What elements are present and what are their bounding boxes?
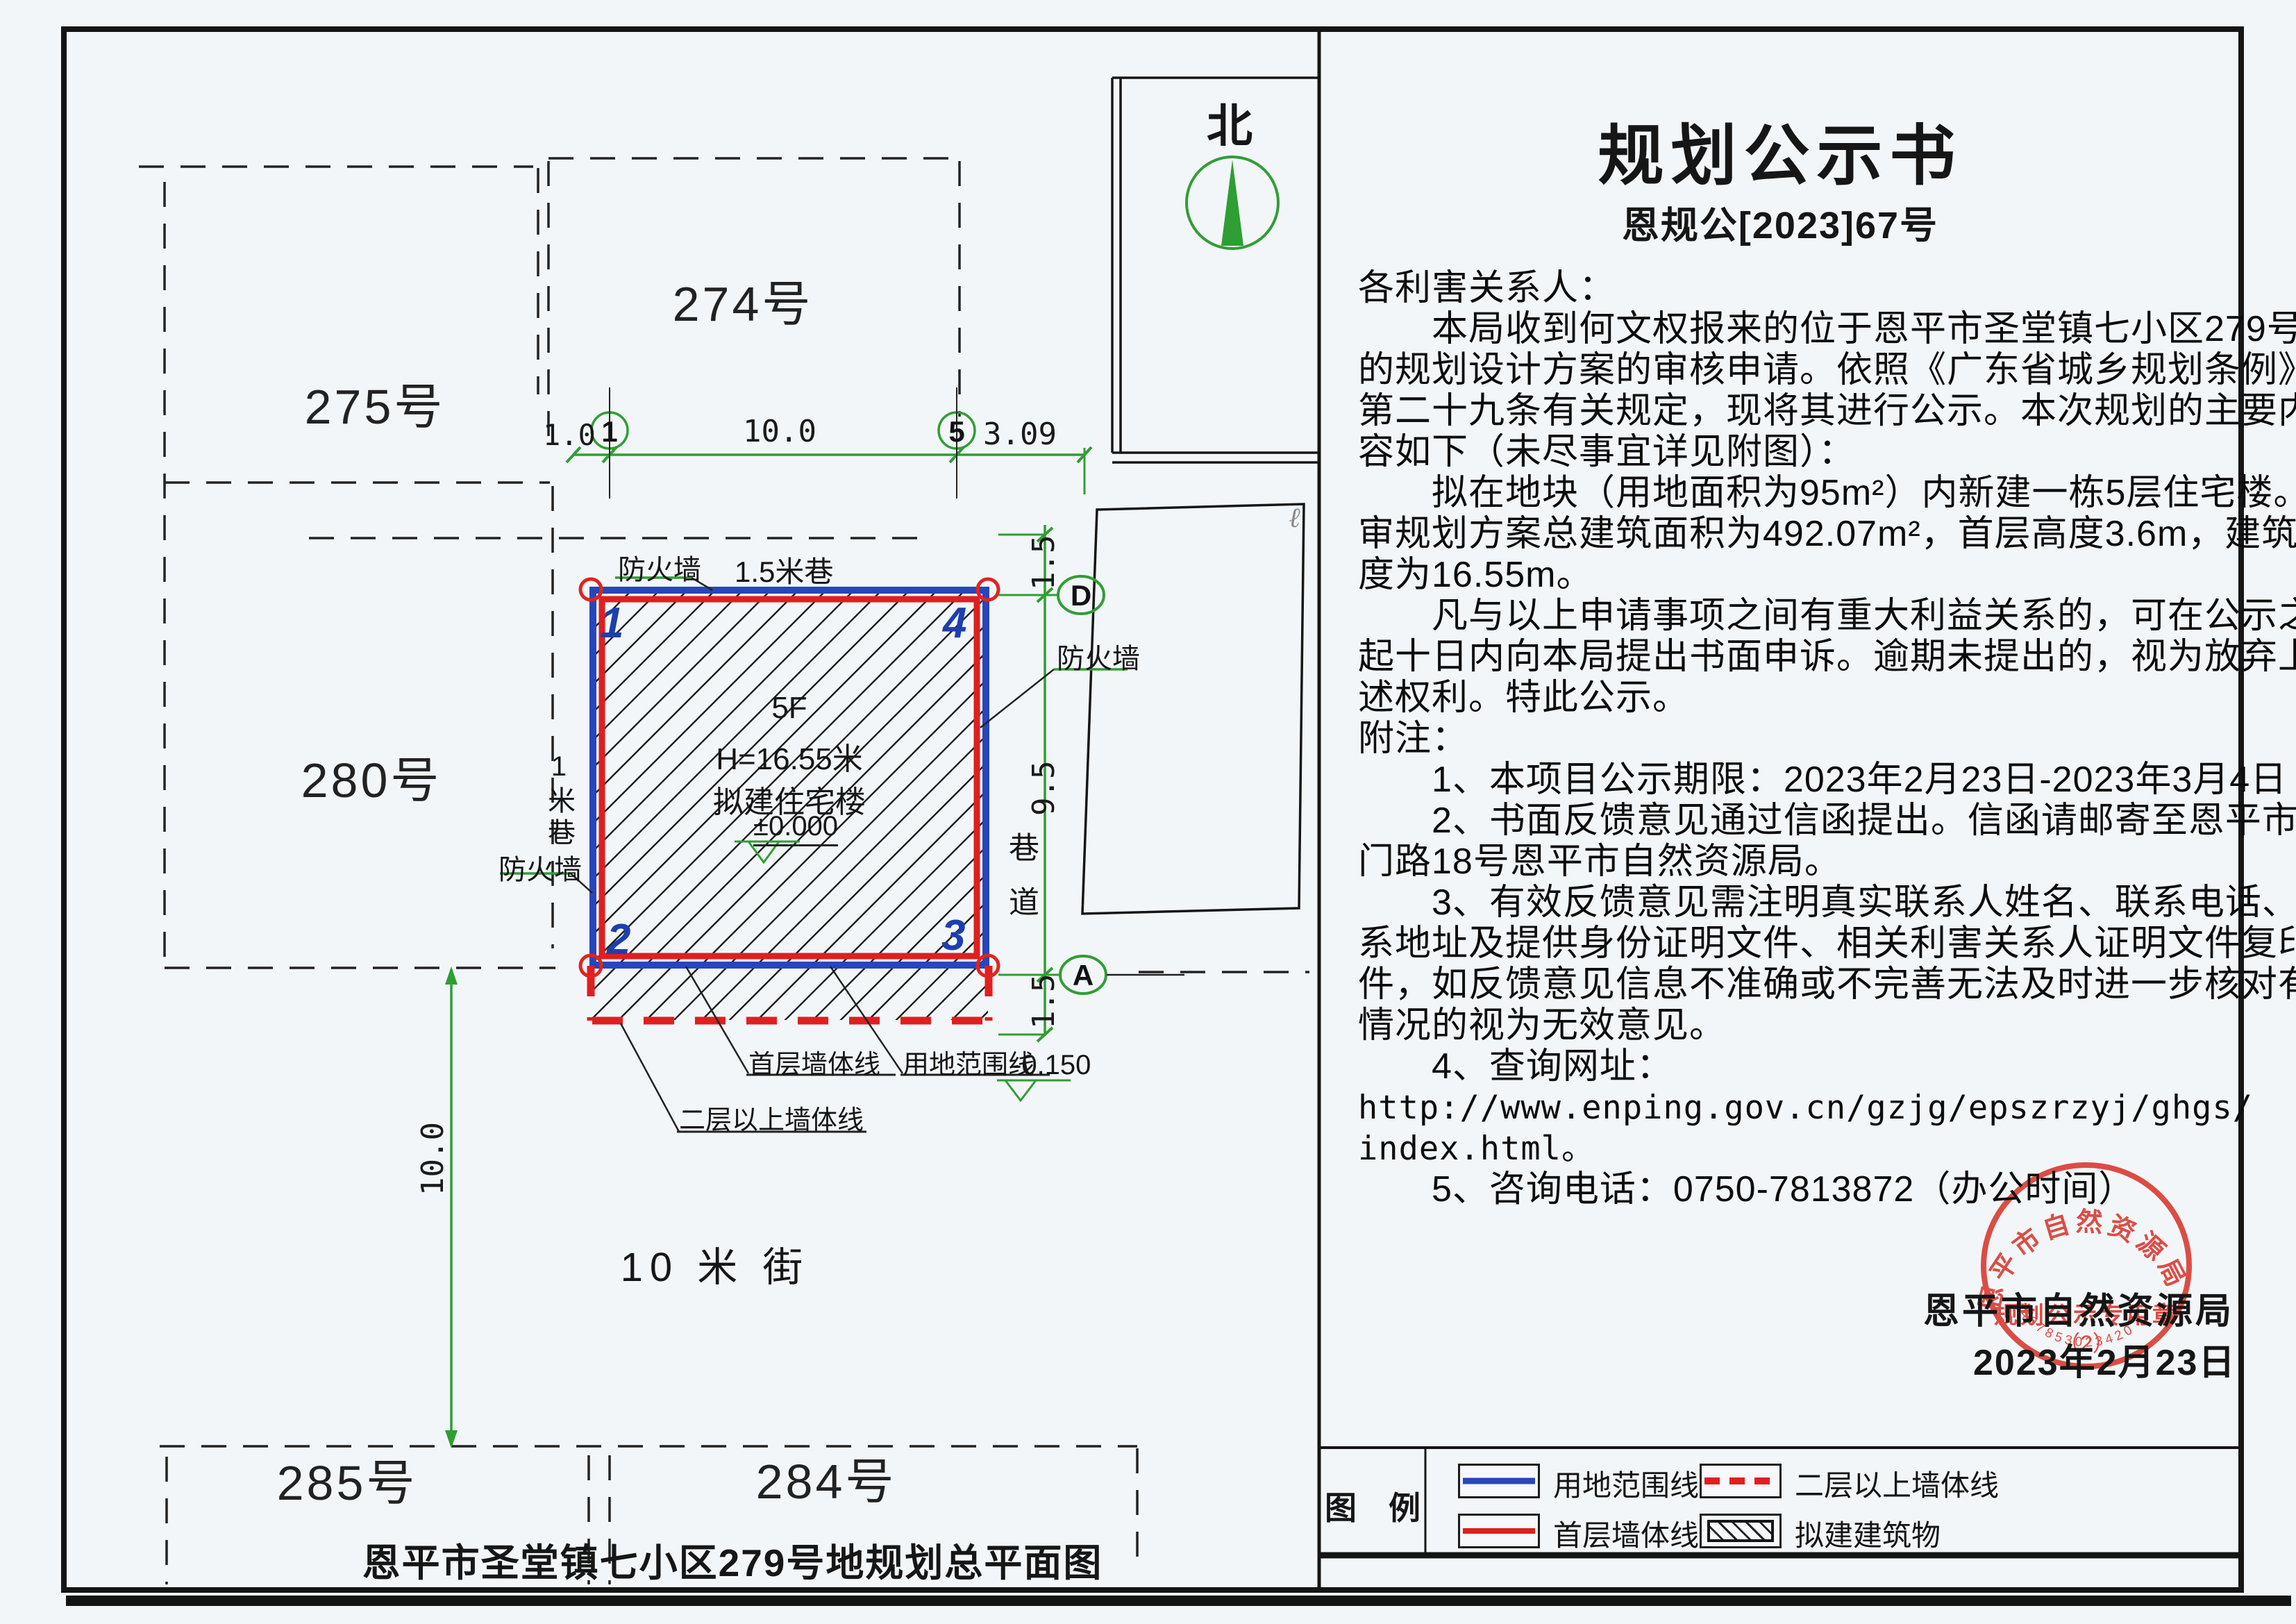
legend-swatch-building [1700,1514,1782,1548]
firewall-label-right: 防火墙 [1057,636,1140,676]
building-corner-3: 3 [941,911,965,960]
building-height: H=16.55米 [685,734,894,778]
red-line-icon [1463,1528,1535,1534]
doc-number: 恩规公[2023]67号 [1319,194,2241,249]
dim-10-0: 10.0 [743,414,816,449]
body-line: 述权利。特此公示。 [1358,678,2254,719]
body-line: 件，如反馈意见信息不准确或不完善无法及时进一步核对有关 [1358,964,2254,1005]
announcement-body: 各利害关系人： 本局收到何文权报来的位于恩平市圣堂镇七小区279号地 的规划设计… [1358,268,2254,1210]
axis-5: 5 [939,415,974,449]
body-line: 4、查询网址： [1358,1046,2254,1087]
dim-v-1-5-bottom: 1.5 [1026,974,1062,1029]
legend-swatch-first-wall [1458,1514,1540,1548]
building-corner-1: 1 [600,598,623,648]
signature-date: 2023年2月23日 [1973,1333,2236,1385]
legend-label-building: 拟建建筑物 [1795,1512,1941,1555]
axis-D: D [1064,579,1098,612]
axis-1: 1 [592,415,627,449]
neighbor-structures [1082,78,1318,914]
upper-wall-hatch [592,967,988,1020]
plot-284: 284号 [729,1443,923,1513]
body-line: 2、书面反馈意见通过信函提出。信函请邮寄至恩平市西 [1358,801,2254,842]
building-corner-4: 4 [943,598,966,648]
body-line-url: index.html。 [1358,1128,2254,1169]
body-line: 第二十九条有关规定，现将其进行公示。本次规划的主要内 [1358,391,2254,432]
dim-3-09: 3.09 [983,417,1057,452]
legend-label-upper-wall: 二层以上墙体线 [1795,1462,1999,1505]
site-line-label: 用地范围线 [903,1043,1034,1081]
dim-1-0: 1.0 [543,418,596,452]
north-label: 北 [1207,89,1252,156]
body-line: 各利害关系人： [1358,268,2254,309]
body-line: 拟在地块（用地面积为95m²）内新建一栋5层住宅楼。送 [1358,473,2254,514]
alley-label: 巷道 [998,832,1043,940]
street-label: 10 米 街 [590,1234,840,1293]
body-line-url: http://www.enping.gov.cn/gzjg/epszrzyj/g… [1358,1087,2254,1128]
legend-label-site-line: 用地范围线 [1553,1462,1699,1505]
body-line: 门路18号恩平市自然资源局。 [1358,842,2254,882]
body-line: 系地址及提供身份证明文件、相关利害关系人证明文件复印 [1358,923,2254,964]
upper-wall-label: 二层以上墙体线 [679,1098,864,1137]
body-line: 1、本项目公示期限：2023年2月23日-2023年3月4日 [1358,760,2254,801]
legend-header: 图 例 [1321,1483,1424,1529]
body-line: 度为16.55m。 [1358,555,2254,596]
body-line: 凡与以上申请事项之间有重大利益关系的，可在公示之日 [1358,596,2254,637]
body-line: 情况的视为无效意见。 [1358,1005,2254,1046]
axis-A: A [1066,959,1100,992]
lane-1-5m-label: 1.5米巷 [735,549,833,591]
building-floors: 5F [737,691,841,726]
doc-title: 规划公示书 [1319,103,2241,198]
plot-275: 275号 [278,368,472,438]
hatch-box-icon [1707,1520,1774,1542]
firewall-label-top: 防火墙 [618,547,701,587]
body-line: 附注： [1358,719,2254,760]
body-line: 的规划设计方案的审核申请。依照《广东省城乡规划条例》 [1358,350,2254,391]
plot-274: 274号 [646,265,840,335]
body-line: 审规划方案总建筑面积为492.07m²，首层高度3.6m，建筑总高 [1358,514,2254,555]
red-dashed-line-icon [1704,1477,1777,1484]
blue-line-icon [1463,1478,1535,1484]
page-edge-shadow [66,1596,2291,1606]
firewall-label-left: 防火墙 [498,847,582,887]
plot-280: 280号 [274,742,469,812]
plot-285: 285号 [250,1444,444,1514]
signature-agency: 恩平市自然资源局 [1923,1282,2234,1334]
plan-title: 恩平市圣堂镇七小区279号地规划总平面图 [292,1532,1173,1587]
legend-swatch-site-line [1458,1464,1540,1498]
dim-v-1-5-top: 1.5 [1026,535,1062,590]
body-line: 本局收到何文权报来的位于恩平市圣堂镇七小区279号地 [1358,309,2254,350]
level-zero: ±0.000 [753,811,838,846]
scan-artifact-mark: ℓ [1289,501,1300,534]
body-line: 容如下（未尽事宜详见附图）： [1358,432,2254,473]
dim-v-9-5: 9.5 [1026,761,1062,816]
dim-street-10-0: 10.0 [415,1122,451,1196]
legend-swatch-upper-wall [1700,1464,1782,1498]
legend-label-first-wall: 首层墙体线 [1553,1512,1699,1555]
building-corner-2: 2 [607,915,630,964]
body-line: 起十日内向本局提出书面申诉。逾期未提出的，视为放弃上 [1358,637,2254,678]
body-line: 5、咨询电话：0750-7813872（办公时间） [1358,1169,2254,1210]
lane-1m-label: 1米巷 [539,751,579,850]
first-wall-label: 首层墙体线 [748,1043,880,1081]
body-line: 3、有效反馈意见需注明真实联系人姓名、联系电话、联 [1358,882,2254,923]
